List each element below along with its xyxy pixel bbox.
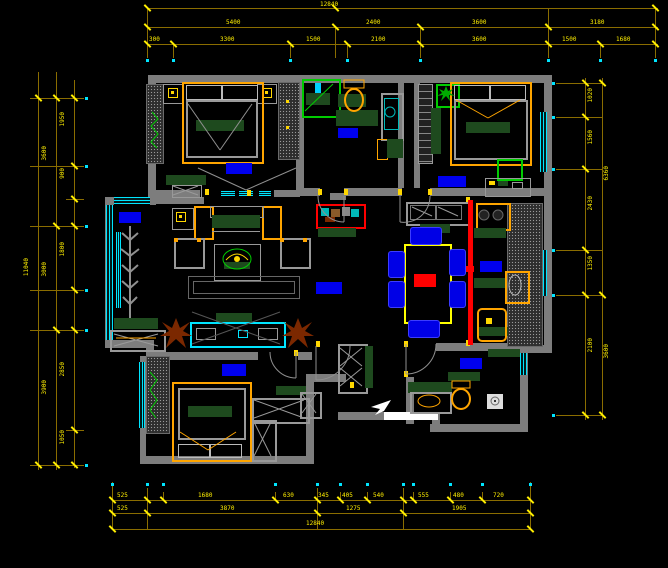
plant-vine — [150, 372, 157, 418]
dim-label: 11040 — [24, 258, 30, 276]
dim-label: 1950 — [60, 112, 66, 126]
kitchen-sink-bowl — [509, 275, 521, 295]
dim-label: 12840 — [306, 521, 324, 527]
dim-label: 405 — [342, 493, 353, 499]
table-plant-center — [234, 256, 240, 262]
toilet-bowl — [452, 389, 470, 409]
dim-label: 1350 — [588, 256, 594, 270]
dim-label: 1500 — [562, 37, 576, 43]
sliding-door-line — [198, 168, 246, 190]
dim-label: 555 — [418, 493, 429, 499]
dim-label: 3000 — [42, 262, 48, 276]
dim-label: 6360 — [604, 166, 610, 180]
dim-label: 1800 — [60, 242, 66, 256]
dim-label: 300 — [149, 37, 160, 43]
entry-arrow-icon — [371, 400, 391, 415]
dim-label: 900 — [60, 168, 66, 179]
dim-label: 2850 — [60, 362, 66, 376]
dim-label: 480 — [453, 493, 464, 499]
dim-label: 2400 — [366, 20, 380, 26]
potted-plant-brown — [282, 318, 314, 348]
toilet-bowl — [345, 89, 363, 111]
dim-label: 345 — [318, 493, 329, 499]
dim-label: 3600 — [472, 37, 486, 43]
dim-label: 1275 — [346, 506, 360, 512]
bed-drape — [188, 104, 220, 150]
dim-label: 1905 — [452, 506, 466, 512]
stove-burner — [493, 210, 503, 220]
dim-label: 1020 — [588, 88, 594, 102]
balcony-branch-rack — [121, 226, 139, 318]
dim-label: 5400 — [226, 20, 240, 26]
door-arc — [400, 196, 430, 222]
shower-diagonal — [305, 84, 333, 111]
plant-green — [437, 86, 455, 101]
drawing-overlay — [0, 0, 668, 568]
plant-vine — [151, 112, 158, 148]
dim-label: 525 — [117, 506, 128, 512]
dim-label: 1680 — [198, 493, 212, 499]
dim-label: 1050 — [60, 430, 66, 444]
door-arc — [316, 346, 350, 380]
dim-label: 540 — [373, 493, 384, 499]
bed-drape — [456, 100, 488, 118]
dim-label: 2100 — [588, 338, 594, 352]
bed-drape — [220, 104, 252, 150]
dim-label: 2100 — [371, 37, 385, 43]
dim-label: 12840 — [320, 2, 338, 8]
sliding-door-line — [246, 168, 296, 190]
dim-label: 3180 — [590, 20, 604, 26]
dim-label: 3870 — [220, 506, 234, 512]
washer-drum — [385, 107, 395, 117]
toilet-tank — [452, 381, 470, 388]
dim-label: 1500 — [306, 37, 320, 43]
door-arc — [318, 196, 344, 222]
bed-drape — [208, 432, 236, 450]
dim-label: 1560 — [588, 130, 594, 144]
bed-drape — [488, 100, 520, 118]
dim-label: 3300 — [220, 37, 234, 43]
dim-label: 3600 — [472, 20, 486, 26]
door-arc — [270, 352, 296, 378]
sink-bowl — [418, 395, 440, 407]
washer-dot — [494, 400, 496, 402]
stove-burner — [479, 210, 489, 220]
dim-label: 3900 — [42, 380, 48, 394]
dim-label: 720 — [493, 493, 504, 499]
buffet-diagonal — [438, 207, 458, 216]
bed-drape — [180, 432, 208, 450]
dim-label: 2430 — [588, 196, 594, 210]
dim-label: 525 — [117, 493, 128, 499]
door-arc — [406, 344, 436, 374]
dim-label: 1680 — [616, 37, 630, 43]
floor-plan-canvas: 12840 5400 2400 3600 3180 300 3300 1500 … — [0, 0, 668, 568]
toilet-tank — [344, 80, 364, 88]
potted-plant-brown — [160, 318, 192, 348]
dim-label: 630 — [283, 493, 294, 499]
dim-label: 3600 — [42, 146, 48, 160]
dim-label: 3600 — [604, 344, 610, 358]
